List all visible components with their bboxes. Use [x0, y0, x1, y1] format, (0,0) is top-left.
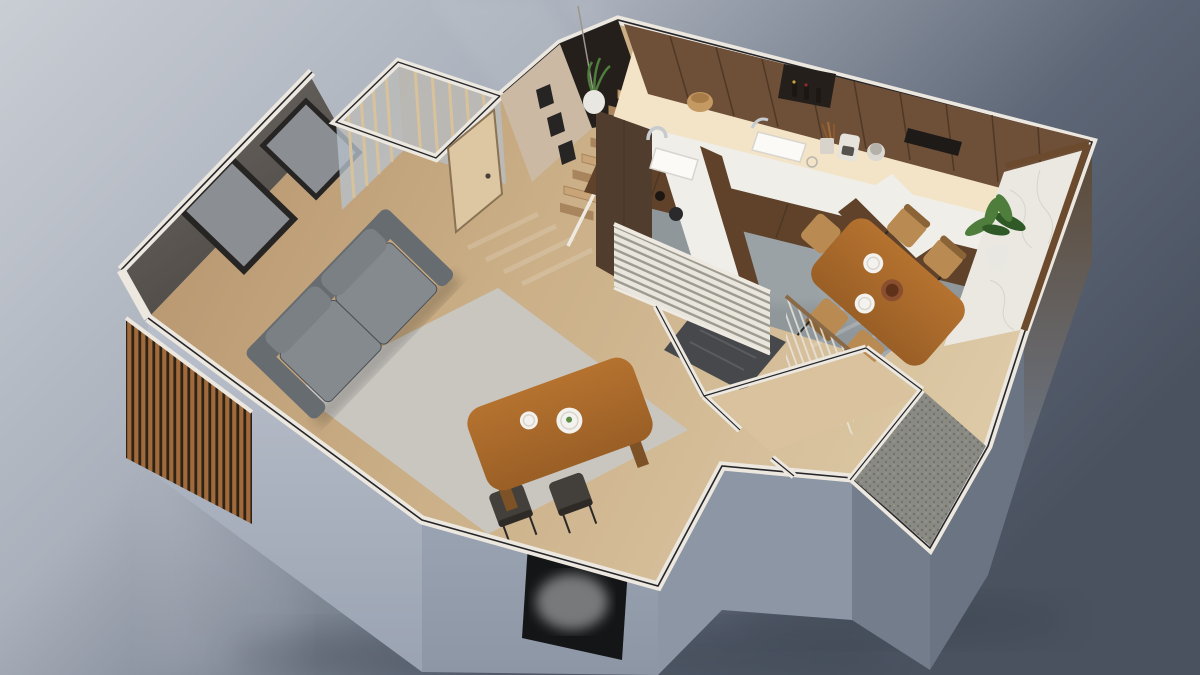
canister [867, 143, 885, 161]
render-stage [0, 0, 1200, 675]
niche-smoke [536, 574, 608, 630]
plant-pot [986, 246, 1008, 270]
floorplan-render [0, 0, 1200, 675]
exterior-wall-nook [722, 466, 852, 620]
planter-pot [583, 90, 605, 114]
door-handle [485, 173, 490, 178]
soap-bottle [655, 191, 665, 201]
kettle [669, 207, 683, 221]
basket-rim [691, 93, 709, 103]
